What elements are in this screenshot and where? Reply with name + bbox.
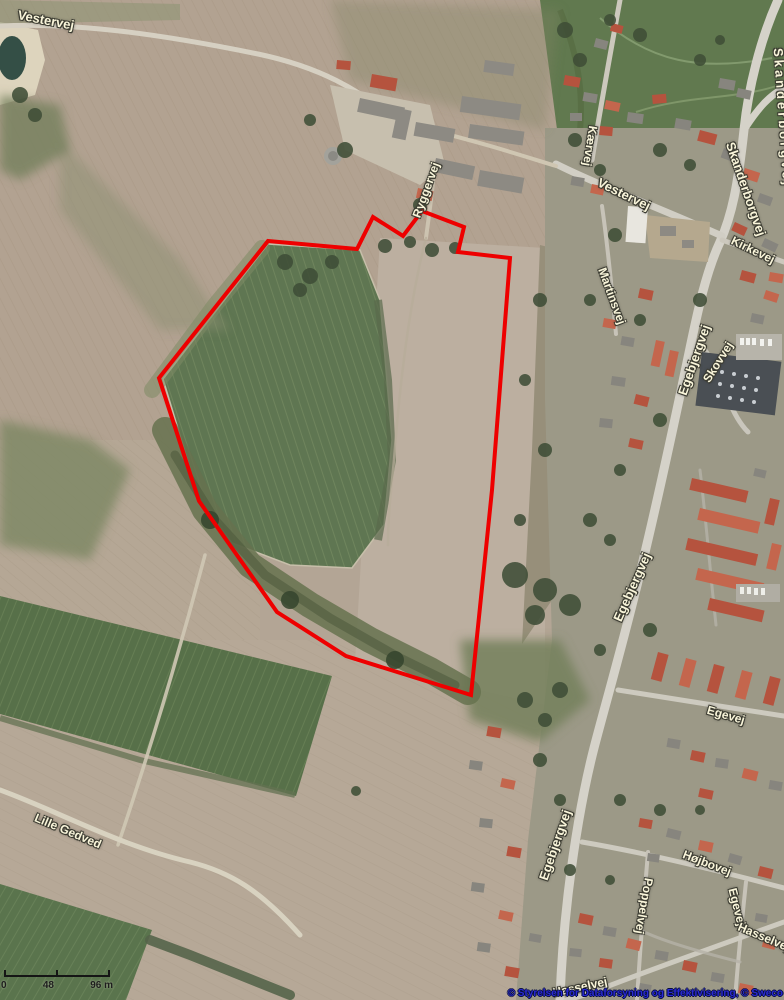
scale-bar-line	[4, 975, 110, 977]
aerial-map-canvas[interactable]: VestervejSkanderborgvejKærvejVestervejSk…	[0, 0, 784, 1000]
scale-unit: m	[104, 980, 113, 991]
scale-bar: 0 48 96 m	[4, 975, 110, 991]
scale-bar-tick-end	[108, 970, 110, 975]
map-attribution: © Styrelsen for Dataforsyning og Effekti…	[508, 988, 783, 999]
scale-start: 0	[1, 980, 7, 991]
scale-bar-labels: 0 48 96 m	[1, 980, 113, 991]
scale-mid: 48	[43, 980, 54, 991]
orthophoto-layer	[0, 0, 784, 1000]
scale-bar-tick-start	[4, 970, 6, 975]
scale-bar-tick-mid	[56, 970, 58, 975]
scale-end: 96 m	[90, 980, 113, 991]
